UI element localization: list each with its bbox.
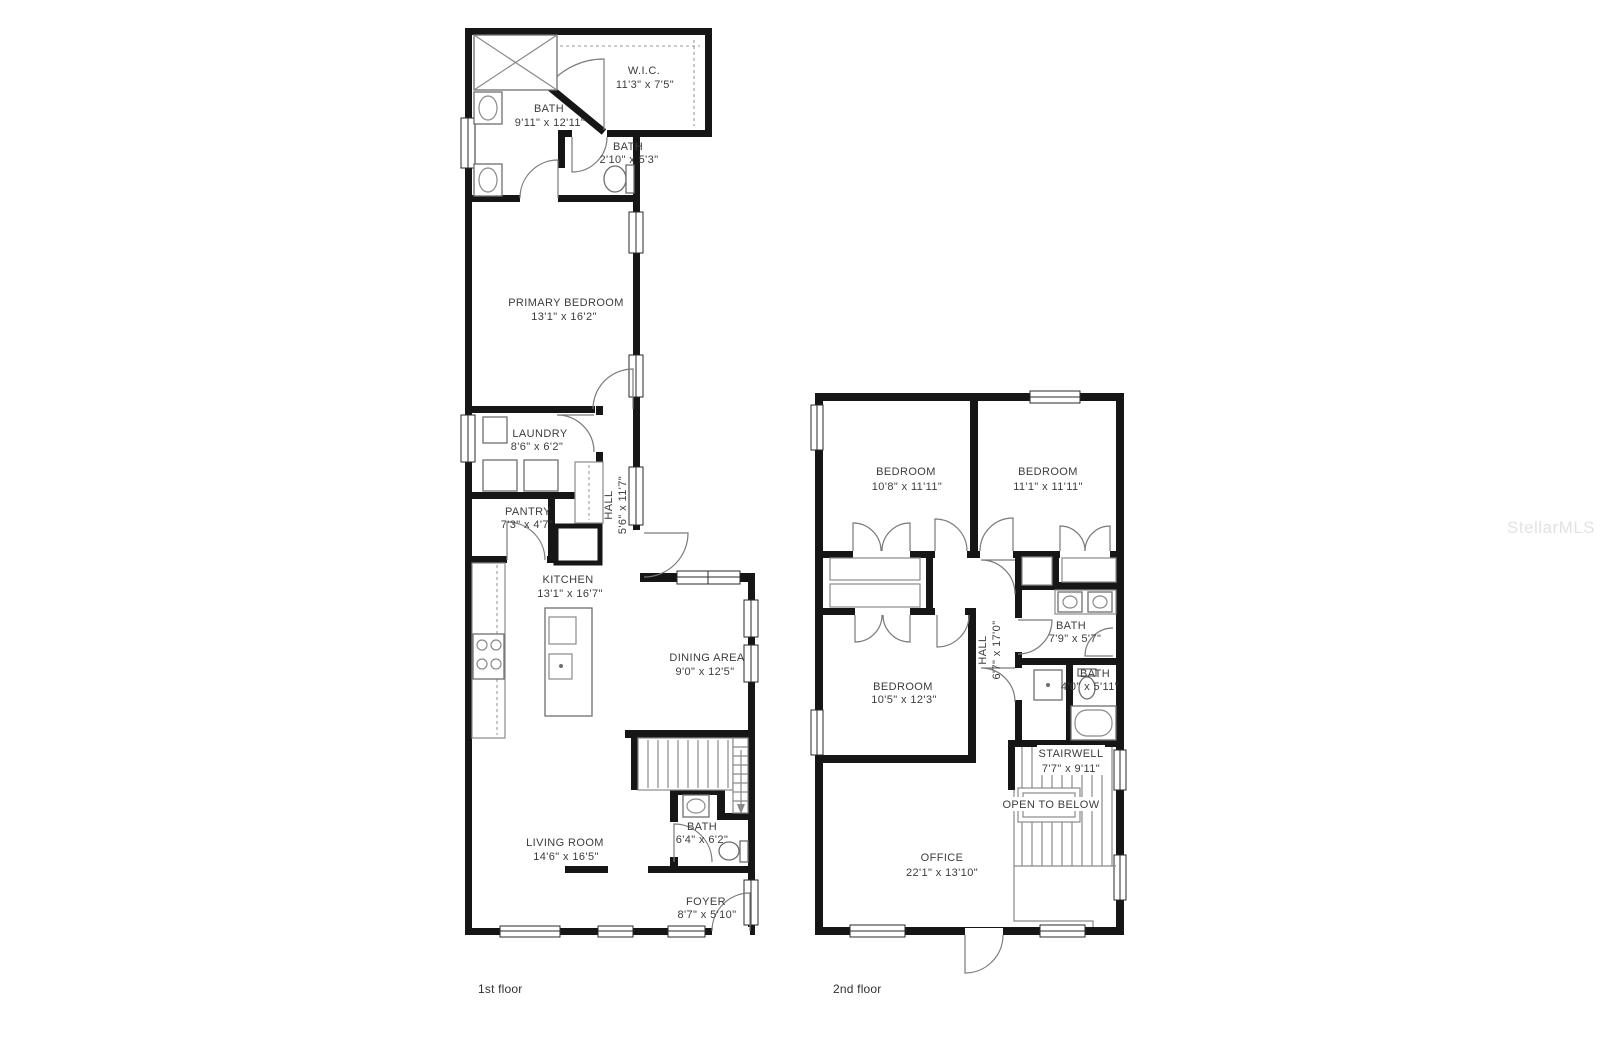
understair-line [1014,866,1093,927]
floor2-exterior-door [965,935,1003,973]
room-label-wic: W.I.C. [628,65,660,77]
room-dims-bedroom1: 10'8" x 11'11" [872,481,942,493]
room-label-foyer: FOYER [686,896,726,908]
sink [474,92,502,124]
room-label-pantry: PANTRY [505,506,551,518]
room-dims-bath2: 4'0" x 5'11" [1061,681,1119,693]
room-dims-pantry: 7'3" x 4'7" [501,519,554,531]
room-label-primary: PRIMARY BEDROOM [508,297,624,309]
room-dims-laundry: 8'6" x 6'2" [511,441,564,453]
room-dims-bath1: 7'9" x 5'7" [1049,633,1102,645]
sink [1058,592,1082,612]
washer [483,460,517,491]
watermark: StellarMLS [1507,518,1595,537]
room-label-kitchen: KITCHEN [542,574,593,586]
bedroom1-entry-door [935,519,967,551]
room-dims-primary: 13'1" x 16'2" [531,311,597,323]
room-label-bath-half: BATH [687,821,717,833]
room-label-laundry: LAUNDRY [512,428,567,440]
room-dims-foyer: 8'7" x 5'10" [677,909,736,921]
entry-door-opening [712,927,750,936]
room-dims-bedroom2: 11'1" x 11'11" [1013,481,1083,493]
closet [830,558,920,580]
room-label-bedroom2: BEDROOM [1018,466,1078,478]
room-label-bath-small: BATH [613,141,643,153]
toilet [740,841,748,862]
laundry-shelf [483,417,507,443]
bedroom3-closet-door [883,615,910,642]
bedroom1-closet-door [853,523,881,551]
room-dims-hall1: 5'6" x 11'7" [617,476,629,534]
hall-dining-door [644,533,688,577]
room-dims-bath-small: 2'10" x 5'3" [599,154,658,166]
sink [1088,592,1112,612]
room-label-hall2: HALL [977,635,989,664]
bedroom3-entry-door [937,615,969,647]
room-dims-stairwell: 7'7" x 9'11" [1042,763,1100,775]
bath1-door [1018,620,1052,654]
primary-bedroom-door [593,369,633,409]
room-label-office: OFFICE [921,852,964,864]
room-label-stairwell: STAIRWELL [1039,748,1104,760]
room-dims-wic: 11'3" x 7'5" [616,79,674,91]
room-label-bath1: BATH [1056,620,1086,632]
linen-closet-door [981,560,1015,594]
room-dims-bath-primary: 9'11" x 12'11" [515,117,585,129]
floorplan-drawing: BATH 9'11" x 12'11" W.I.C. 11'3" x 7'5" … [0,0,1600,1061]
primary-bath-door [520,160,558,198]
first-floor-labels: BATH 9'11" x 12'11" W.I.C. 11'3" x 7'5" … [478,65,745,996]
closet [830,584,920,607]
bedroom2-closet-door [1060,526,1085,551]
dryer [524,460,558,491]
room-label-bath-primary: BATH [534,103,564,115]
bedroom2-closet-door [1085,526,1110,551]
floor2-door-opening [965,928,1003,936]
sink [474,164,502,196]
room-label-dining: DINING AREA [669,652,745,664]
room-dims-bath-half: 6'4" x 6'2" [676,834,729,846]
room-dims-kitchen: 13'1" x 16'7" [537,588,603,600]
linen-closet [1022,557,1052,585]
room-label-bedroom1: BEDROOM [876,466,936,478]
room-label-hall1: HALL [603,490,615,519]
hall-closet [556,526,600,563]
first-floor-plan: BATH 9'11" x 12'11" W.I.C. 11'3" x 7'5" … [461,28,758,996]
room-dims-dining: 9'0" x 12'5" [675,666,734,678]
bedroom2-entry-door [980,518,1013,551]
first-floor-caption: 1st floor [478,982,523,996]
room-label-bedroom3: BEDROOM [873,681,933,693]
floorplan-page: BATH 9'11" x 12'11" W.I.C. 11'3" x 7'5" … [0,0,1600,1061]
second-floor-caption: 2nd floor [833,982,882,996]
second-floor-plan: BEDROOM 10'8" x 11'11" BEDROOM 11'1" x 1… [811,391,1126,996]
bedroom3-closet-door [855,615,882,642]
room-dims-hall2: 6'7" x 17'0" [991,620,1003,679]
toilet [626,165,634,193]
room-dims-office: 22'1" x 13'10" [906,867,978,879]
room-label-bath2: BATH [1080,668,1110,680]
room-label-living: LIVING ROOM [526,837,604,849]
room-dims-bedroom3: 10'5" x 12'3" [871,694,937,706]
bedroom1-closet-door [882,523,910,551]
bedroom2-closet [1062,558,1116,582]
room-dims-living: 14'6" x 16'5" [533,851,599,863]
open-to-below-label: OPEN TO BELOW [1002,799,1099,811]
